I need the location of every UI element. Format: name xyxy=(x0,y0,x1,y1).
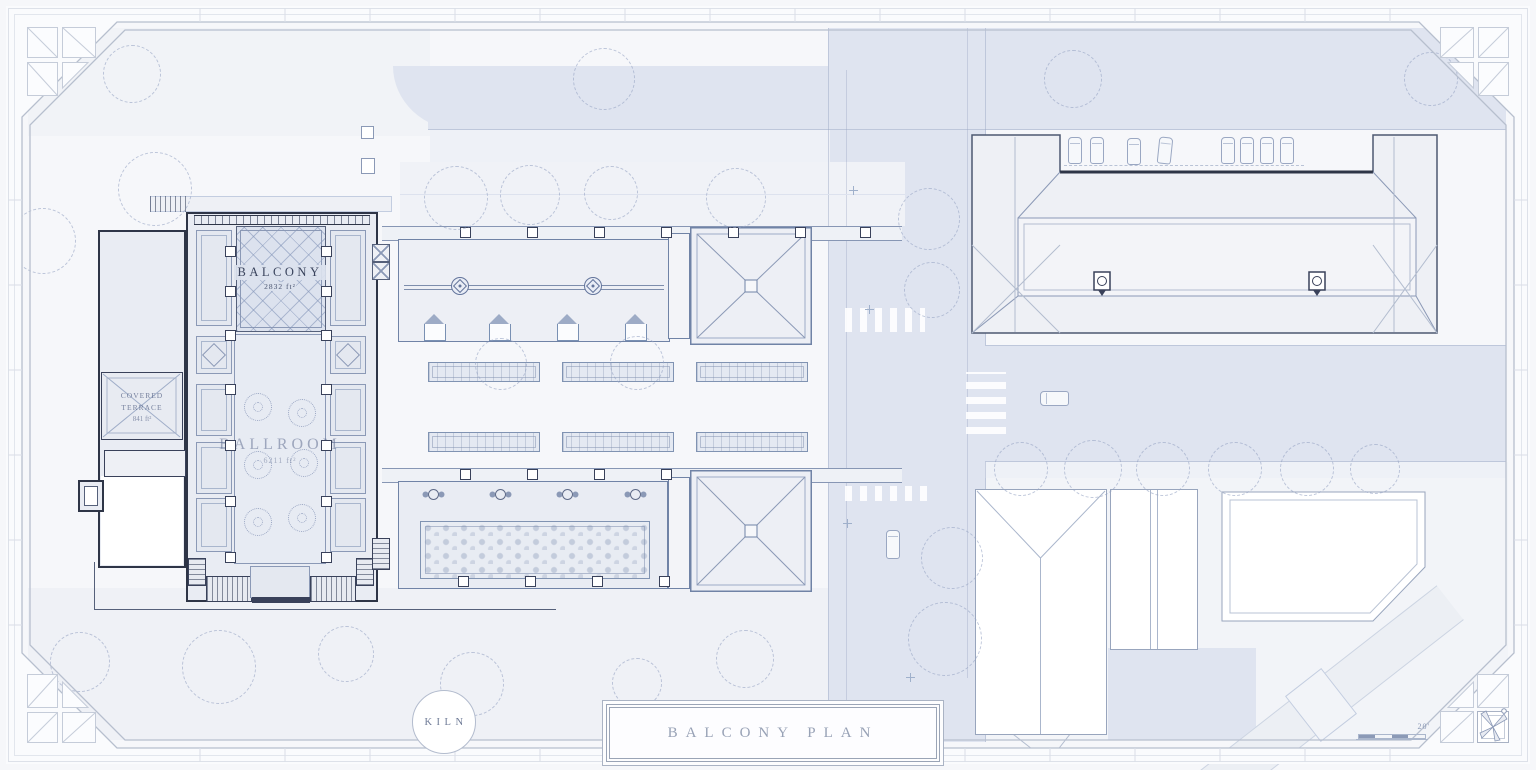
diamond-bay xyxy=(330,336,366,374)
tree-icon xyxy=(1044,50,1102,108)
service-box xyxy=(372,244,390,262)
tree-icon xyxy=(898,188,960,250)
west-annex-room xyxy=(101,476,183,565)
medallion-ornament xyxy=(428,489,439,500)
car-icon xyxy=(1221,137,1235,164)
tree-icon xyxy=(904,262,960,318)
column xyxy=(594,227,605,238)
column xyxy=(225,440,236,451)
tree-icon xyxy=(424,166,488,230)
roof-ridge xyxy=(404,285,664,290)
site-marker xyxy=(361,158,375,174)
column xyxy=(321,440,332,451)
parking-line xyxy=(1064,165,1304,166)
dormer xyxy=(557,324,579,341)
car-icon xyxy=(1280,137,1294,164)
car-icon xyxy=(1068,137,1082,164)
street-lamp-icon xyxy=(906,673,915,682)
column xyxy=(527,227,538,238)
tree-icon xyxy=(318,626,374,682)
column xyxy=(321,496,332,507)
terrace-roof-lines xyxy=(102,373,181,438)
column xyxy=(321,246,332,257)
column xyxy=(659,576,670,587)
car-icon xyxy=(1240,137,1254,164)
car-icon xyxy=(1040,391,1069,406)
tree-icon xyxy=(475,338,527,390)
sheet-title: BALCONY PLAN xyxy=(668,725,879,742)
roof-finial-icon xyxy=(451,277,469,295)
planter xyxy=(428,432,540,452)
sidewalk-top xyxy=(430,130,830,162)
column xyxy=(225,552,236,563)
title-block: BALCONY PLAN xyxy=(602,700,944,766)
car-icon xyxy=(1260,137,1274,164)
car-icon xyxy=(886,530,900,559)
street-lamp-icon xyxy=(843,519,852,528)
column xyxy=(225,330,236,341)
bay-cell xyxy=(330,442,366,494)
lane-line xyxy=(846,70,847,742)
tree-icon xyxy=(610,336,664,390)
banquet-table xyxy=(244,393,272,421)
east-building-roof xyxy=(960,125,1450,340)
dormer xyxy=(424,324,446,341)
column xyxy=(321,552,332,563)
scale-bar-line xyxy=(1356,739,1428,740)
upper-pavilion-roof xyxy=(690,227,812,345)
tree-icon xyxy=(716,630,774,688)
banquet-table xyxy=(290,449,318,477)
tree-icon xyxy=(118,152,192,226)
column xyxy=(527,469,538,480)
column xyxy=(321,286,332,297)
bay-cell xyxy=(196,230,232,326)
column xyxy=(795,227,806,238)
tree-icon xyxy=(500,165,560,225)
medallion-ornament xyxy=(630,489,641,500)
north-cornice xyxy=(194,215,370,225)
elevator-cab xyxy=(84,486,98,506)
crosswalk xyxy=(845,486,935,501)
balcony-room xyxy=(236,226,326,332)
tree-icon xyxy=(1208,442,1262,496)
scale-label: 20' xyxy=(1418,722,1430,731)
pavilion-hip-roof xyxy=(690,470,812,592)
column xyxy=(225,384,236,395)
banquet-table xyxy=(288,504,316,532)
column xyxy=(594,469,605,480)
medallion-ornament xyxy=(562,489,573,500)
column xyxy=(225,246,236,257)
column xyxy=(460,469,471,480)
column xyxy=(321,330,332,341)
curb-line xyxy=(828,28,829,742)
bay-cell xyxy=(330,230,366,326)
planter xyxy=(562,432,674,452)
balcony-plan-drawing: COVERED TERRACE 841 ft² BALCONY 2832 ft²… xyxy=(0,0,1536,770)
column xyxy=(661,227,672,238)
bay-cell xyxy=(330,384,366,436)
tree-icon xyxy=(103,45,161,103)
column xyxy=(321,384,332,395)
column xyxy=(860,227,871,238)
lawn-top-left xyxy=(28,28,430,136)
diamond-bay xyxy=(196,336,232,374)
street-lamp-icon xyxy=(865,305,874,314)
bay-cell xyxy=(330,498,366,552)
title-block-field: BALCONY PLAN xyxy=(609,707,937,759)
tree-icon xyxy=(1350,444,1400,494)
wing-connector xyxy=(668,233,690,339)
column xyxy=(661,469,672,480)
planter xyxy=(696,432,808,452)
wing-stair xyxy=(372,538,390,570)
scale-bar: 20' xyxy=(1358,722,1430,744)
banquet-table xyxy=(244,451,272,479)
banquet-table xyxy=(244,508,272,536)
tree-icon xyxy=(1064,440,1122,498)
west-stair-corridor xyxy=(104,450,186,477)
crosswalk xyxy=(966,372,1006,434)
covered-terrace xyxy=(101,372,183,440)
tree-icon xyxy=(908,602,982,676)
column xyxy=(525,576,536,587)
medallion-ornament xyxy=(495,489,506,500)
tree-icon xyxy=(1404,52,1458,106)
curb-line xyxy=(985,345,1506,346)
kiln-logo: KILN xyxy=(412,690,476,754)
pavilion-hip-roof xyxy=(690,227,812,345)
column xyxy=(592,576,603,587)
column xyxy=(225,286,236,297)
wing-connector xyxy=(668,477,690,589)
tree-icon xyxy=(10,208,76,274)
column xyxy=(225,496,236,507)
crosswalk xyxy=(845,308,925,332)
roof-finial-icon xyxy=(584,277,602,295)
car-icon xyxy=(1127,138,1141,165)
tree-icon xyxy=(584,166,638,220)
tree-icon xyxy=(182,630,256,704)
tree-icon xyxy=(1280,442,1334,496)
tree-icon xyxy=(573,48,635,110)
title-block-inner-frame: BALCONY PLAN xyxy=(606,704,940,762)
tree-icon xyxy=(921,527,983,589)
tree-icon xyxy=(50,632,110,692)
column xyxy=(728,227,739,238)
column xyxy=(458,576,469,587)
tree-icon xyxy=(1136,442,1190,496)
planted-bed xyxy=(420,521,650,579)
planter xyxy=(696,362,808,382)
kiln-logo-label: KILN xyxy=(420,717,467,728)
tree-icon xyxy=(706,168,766,228)
banquet-table xyxy=(288,399,316,427)
site-marker xyxy=(361,126,374,139)
car-icon xyxy=(1090,137,1104,164)
street-lamp-icon xyxy=(849,186,858,195)
south-east-buildings xyxy=(960,480,1440,742)
car-icon xyxy=(1157,136,1174,164)
tree-icon xyxy=(994,442,1048,496)
lower-pavilion-roof xyxy=(690,470,812,592)
service-box xyxy=(372,262,390,280)
